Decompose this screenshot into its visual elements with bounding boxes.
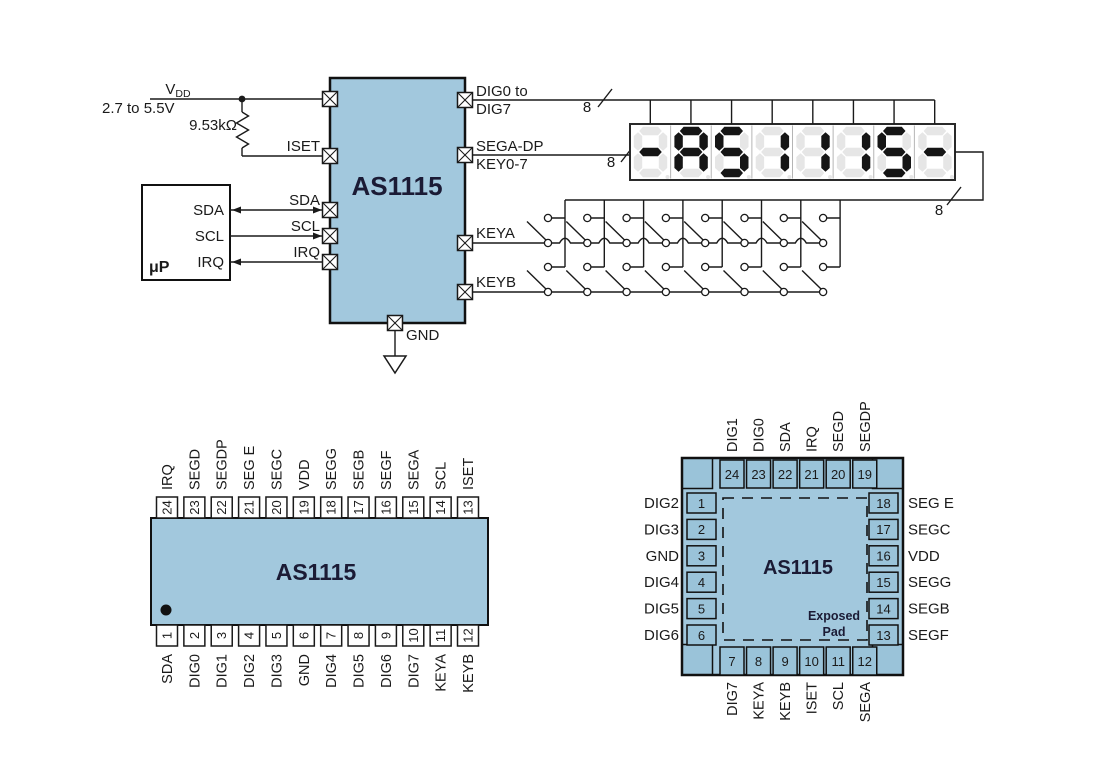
display-segment-d: [761, 169, 784, 177]
dig-bus-slash-icon: [598, 89, 612, 107]
qfn-pin-label: DIG3: [644, 521, 679, 538]
keyb-switch-lever: [802, 271, 823, 292]
qfn-pad-number: 24: [725, 467, 739, 482]
qfn-pad-number: 12: [858, 654, 872, 669]
display-segment-f: [796, 132, 804, 151]
keyb-switch-lever: [566, 271, 587, 292]
switch-contact-node: [544, 239, 551, 246]
qfn-pin-label: DIG5: [644, 601, 679, 618]
sda-arrow-left-icon: [232, 207, 241, 214]
qfn-pin-label: SEGA: [858, 682, 874, 723]
display-segment-g: [639, 148, 662, 156]
soic-pin-number: 16: [378, 500, 393, 514]
qfn-pad-number: 21: [804, 467, 818, 482]
switch-contact-node: [820, 214, 827, 221]
soic-pin-number: 15: [406, 500, 421, 514]
qfn-pad-number: 10: [804, 654, 818, 669]
soic-pin-number: 5: [269, 632, 284, 639]
soic-package-pinout: AS1115 24IRQ23SEGD22SEGDP21SEG E20SEGC19…: [151, 439, 488, 692]
display-segment-e: [796, 153, 804, 172]
display-segment-c: [943, 153, 951, 172]
soic-pin-number: 11: [433, 629, 448, 643]
soic-pin-number: 20: [269, 500, 284, 514]
display-segment-g: [842, 148, 865, 156]
datasheet-figure: VDD 2.7 to 5.5V 9.53kΩ ISET SDA SCL IRQ …: [0, 0, 1100, 778]
soic-pin-label: DIG1: [215, 654, 231, 688]
switch-contact-node: [623, 288, 630, 295]
switch-contact-node: [741, 239, 748, 246]
qfn-pad-number: 4: [698, 575, 705, 590]
qfn-pad-number: 5: [698, 601, 705, 616]
mcu-irq-label: IRQ: [197, 254, 224, 271]
soic-pin-number: 9: [378, 632, 393, 639]
keya-switch-lever: [802, 222, 823, 243]
qfn-pin-label: SEGB: [908, 601, 950, 618]
seg-bus-width: 8: [607, 154, 615, 171]
soic-pin-number: 3: [214, 632, 229, 639]
display-segment-f: [837, 132, 845, 151]
display-segment-d: [639, 169, 662, 177]
switch-contact-node: [820, 288, 827, 295]
soic-pin-number: 24: [160, 500, 175, 514]
qfn-pin-label: SEGDP: [858, 401, 874, 452]
soic-pin-label: DIG4: [324, 654, 340, 688]
soic-pin-label: SEGB: [352, 450, 368, 490]
qfn-pin-label: VDD: [908, 548, 940, 565]
qfn-pin-label: DIG6: [644, 627, 679, 644]
display-dp-dot: [909, 175, 913, 179]
display-segment-f: [674, 132, 682, 151]
mcu-label: μP: [149, 259, 170, 276]
soic-pin-number: 19: [296, 500, 311, 514]
display-segment-f: [634, 132, 642, 151]
qfn-pad-number: 11: [831, 654, 845, 669]
qfn-pad-number: 7: [728, 654, 735, 669]
soic-pin-number: 21: [242, 500, 257, 514]
display-segment-e: [674, 153, 682, 172]
switch-contact-node: [741, 288, 748, 295]
soic-pin-label: SEGDP: [215, 439, 231, 490]
display-segment-e: [837, 153, 845, 172]
supply-range-label: 2.7 to 5.5V: [102, 100, 175, 117]
keya-row-wire: [473, 238, 823, 243]
soic-pin-number: 18: [324, 500, 339, 514]
seg-bus-label-2: KEY0-7: [476, 156, 528, 173]
keyb-switch-lever: [606, 271, 627, 292]
display-dp-dot: [869, 175, 873, 179]
display-segment-a: [639, 127, 662, 135]
display-segment-b: [659, 132, 667, 151]
switch-contact-node: [623, 239, 630, 246]
switch-contact-node: [584, 239, 591, 246]
soic-pin-number: 6: [296, 632, 311, 639]
display-segment-a: [802, 127, 825, 135]
as1115-block-label: AS1115: [351, 171, 442, 201]
qfn-pin-label: SEGD: [831, 411, 847, 452]
keyb-switch-lever: [724, 271, 745, 292]
display-dp-dot: [950, 175, 954, 179]
qfn-pin-label: DIG2: [644, 495, 679, 512]
display-segment-a: [883, 127, 906, 135]
display-segment-c: [740, 153, 749, 172]
irq-arrow-icon: [232, 259, 241, 266]
qfn-pad-number: 2: [698, 522, 705, 537]
display-segment-g: [680, 148, 703, 156]
keya-pin-label: KEYA: [476, 225, 515, 242]
soic-pin-number: 17: [351, 500, 366, 514]
soic-pin-number: 7: [324, 632, 339, 639]
display-segment-f: [756, 132, 764, 151]
display-segment-a: [680, 127, 703, 135]
display-segment-e: [756, 153, 764, 172]
display-dp-dot: [828, 175, 832, 179]
switch-contact-node: [780, 239, 787, 246]
scl-pin-label: SCL: [291, 218, 320, 235]
soic-pin-label: SEGF: [379, 450, 395, 490]
switch-contact-node: [662, 288, 669, 295]
display-segment-g: [802, 148, 825, 156]
soic-pin-label: SDA: [160, 654, 176, 684]
qfn-pin-label: DIG0: [752, 418, 768, 452]
display-segment-c: [862, 153, 870, 172]
qfn-pad-number: 20: [831, 467, 845, 482]
display-segment-b: [781, 132, 789, 151]
qfn-pad-number: 19: [858, 467, 872, 482]
qfn-pad-number: 9: [781, 654, 788, 669]
switch-contact-node: [623, 214, 630, 221]
display-segment-g: [761, 148, 784, 156]
qfn-pad-number: 1: [698, 496, 705, 511]
soic-pin-label: SEG E: [242, 445, 258, 490]
switch-contact-node: [662, 214, 669, 221]
qfn-pin-label: SEGF: [908, 627, 949, 644]
as1115-diagram-svg: VDD 2.7 to 5.5V 9.53kΩ ISET SDA SCL IRQ …: [0, 0, 1100, 778]
qfn-pin-label: DIG4: [644, 574, 679, 591]
qfn-pin-label: SEGC: [908, 521, 951, 538]
soic-pin-label: ISET: [461, 458, 477, 490]
switch-contact-node: [780, 214, 787, 221]
display-segment-d: [842, 169, 865, 177]
qfn-pin-label: DIG1: [725, 418, 741, 452]
soic-pin-number: 23: [187, 500, 202, 514]
display-segment-b: [699, 132, 707, 151]
qfn-pin-label: ISET: [805, 682, 821, 714]
irq-pin-label: IRQ: [293, 244, 320, 261]
display-segment-c: [821, 153, 829, 172]
switch-contact-node: [741, 263, 748, 270]
switch-contact-node: [780, 263, 787, 270]
display-segment-a: [761, 127, 784, 135]
soic-pin-label: GND: [297, 654, 313, 686]
soic-pin-number: 2: [187, 632, 202, 639]
keyb-switch-lever: [645, 271, 666, 292]
qfn-pad-number: 8: [755, 654, 762, 669]
keya-switch-lever: [724, 222, 745, 243]
display-segment-e: [878, 153, 887, 172]
switch-contact-node: [623, 263, 630, 270]
switch-contact-node: [820, 239, 827, 246]
soic-pin-number: 8: [351, 632, 366, 639]
display-segment-f: [715, 132, 724, 151]
soic-pin-number: 12: [461, 628, 476, 642]
qfn-pin-label: SDA: [778, 422, 794, 452]
display-segment-d: [883, 169, 906, 177]
display-segment-d: [924, 169, 947, 177]
soic-pin-label: DIG7: [406, 654, 422, 688]
keyb-switch-lever: [763, 271, 784, 292]
soic-pin-number: 22: [214, 500, 229, 514]
keya-switch-lever: [645, 222, 666, 243]
switch-contact-node: [702, 263, 709, 270]
key-matrix: [473, 200, 840, 296]
qfn-pin-label: SEGG: [908, 574, 951, 591]
qfn-package-pinout: AS1115 Exposed Pad 24DIG123DIG022SDA21IR…: [644, 401, 954, 722]
display-dp-dot: [787, 175, 791, 179]
keya-switch-lever: [684, 222, 705, 243]
soic-pin-number: 13: [461, 500, 476, 514]
display-segment-c: [659, 153, 667, 172]
display-segment-e: [715, 153, 724, 172]
display-segment-g: [924, 148, 947, 156]
application-schematic: VDD 2.7 to 5.5V 9.53kΩ ISET SDA SCL IRQ …: [102, 78, 983, 373]
switch-contact-node: [584, 214, 591, 221]
switch-contact-node: [820, 263, 827, 270]
soic-pin-label: SEGC: [269, 449, 285, 490]
keya-switch-lever: [566, 222, 587, 243]
switch-contact-node: [780, 288, 787, 295]
display-digit-drive-lines: [650, 100, 934, 124]
soic-chip-label: AS1115: [276, 559, 357, 585]
display-segment-b: [903, 132, 912, 151]
qfn-pin-label: DIG7: [725, 682, 741, 716]
soic-pin-label: IRQ: [160, 464, 176, 490]
qfn-pin-label: SEG E: [908, 495, 954, 512]
display-segment-f: [918, 132, 926, 151]
key-bus-slash-icon: [947, 187, 961, 205]
soic-pin-label: KEYA: [434, 654, 450, 692]
display-segment-e: [918, 153, 926, 172]
key-bus-width: 8: [935, 202, 943, 219]
switch-contact-node: [584, 263, 591, 270]
iset-pin-label: ISET: [287, 138, 320, 155]
soic-pin-label: SEGG: [324, 448, 340, 490]
display-segment-b: [862, 132, 870, 151]
soic-pin-label: DIG6: [379, 654, 395, 688]
qfn-pin-label: IRQ: [805, 426, 821, 452]
display-segment-d: [721, 169, 744, 177]
qfn-pad-number: 6: [698, 628, 705, 643]
display-dp-dot: [666, 175, 670, 179]
soic-pin-label: SEGD: [187, 449, 203, 490]
keyb-switch-lever: [527, 271, 548, 292]
keya-switch-lever: [527, 222, 548, 243]
qfn-pad-number: 18: [876, 496, 890, 511]
display-segment-a: [924, 127, 947, 135]
display-segment-e: [634, 153, 642, 172]
qfn-pin-label: GND: [646, 548, 680, 565]
exposed-pad-label-1: Exposed: [808, 609, 860, 623]
dig-bus-width: 8: [583, 99, 591, 116]
keya-switch-lever: [606, 222, 627, 243]
display-segment-c: [903, 153, 912, 172]
dig-bus-label-1: DIG0 to: [476, 83, 528, 100]
switch-contact-node: [702, 214, 709, 221]
soic-pin-label: SEGA: [406, 449, 422, 490]
qfn-pin-label: KEYA: [752, 682, 768, 720]
qfn-pad-number: 16: [876, 549, 890, 564]
gnd-pin-label: GND: [406, 327, 440, 344]
display-segment-g: [883, 148, 906, 156]
soic-pin-number: 1: [160, 632, 175, 639]
display-segment-a: [842, 127, 865, 135]
qfn-pad-number: 14: [876, 601, 890, 616]
qfn-pin-label: KEYB: [778, 682, 794, 721]
switch-contact-node: [741, 214, 748, 221]
qfn-chip-label: AS1115: [763, 557, 833, 579]
display-segment-c: [781, 153, 789, 172]
display-segment-b: [821, 132, 829, 151]
switch-contact-node: [662, 239, 669, 246]
dig-bus-label-2: DIG7: [476, 101, 511, 118]
display-dp-dot: [706, 175, 710, 179]
qfn-pad-number: 13: [876, 628, 890, 643]
ground-symbol-icon: [384, 356, 406, 373]
switch-contact-node: [662, 263, 669, 270]
mcu-scl-label: SCL: [195, 228, 224, 245]
qfn-corner: [683, 645, 713, 675]
mcu-sda-label: SDA: [193, 202, 224, 219]
soic-pin-label: DIG0: [187, 654, 203, 688]
switch-contact-node: [702, 288, 709, 295]
display-segment-d: [680, 169, 703, 177]
soic-pin-label: KEYB: [461, 654, 477, 693]
soic-pin-number: 14: [433, 500, 448, 514]
exposed-pad-label-2: Pad: [823, 625, 846, 639]
switch-contact-node: [544, 263, 551, 270]
display-segment-b: [740, 132, 749, 151]
keyb-switch-lever: [684, 271, 705, 292]
display-segment-f: [878, 132, 887, 151]
display-dp-dot: [747, 175, 751, 179]
qfn-pad-number: 17: [876, 522, 890, 537]
keyb-pin-label: KEYB: [476, 274, 516, 291]
switch-contact-node: [544, 288, 551, 295]
soic-pin-label: VDD: [297, 459, 313, 490]
pin1-dot-icon: [161, 605, 172, 616]
resistor-symbol: [237, 112, 249, 148]
keya-switch-lever: [763, 222, 784, 243]
soic-pin-label: DIG5: [352, 654, 368, 688]
qfn-pad-number: 22: [778, 467, 792, 482]
display-segment-c: [699, 153, 707, 172]
switch-contact-node: [584, 288, 591, 295]
display-segment-d: [802, 169, 825, 177]
qfn-pad-number: 15: [876, 575, 890, 590]
soic-pin-number: 4: [242, 632, 257, 639]
soic-pin-label: DIG3: [269, 654, 285, 688]
switch-contact-node: [544, 214, 551, 221]
qfn-pad-number: 23: [751, 467, 765, 482]
qfn-pin-label: SCL: [831, 682, 847, 710]
soic-pin-label: SCL: [434, 462, 450, 490]
soic-pin-label: DIG2: [242, 654, 258, 688]
display-segment-b: [943, 132, 951, 151]
display-segment-a: [721, 127, 744, 135]
qfn-corner: [683, 459, 713, 489]
switch-contact-node: [702, 239, 709, 246]
display-segment-g: [721, 148, 744, 156]
sda-pin-label: SDA: [289, 192, 320, 209]
seg-bus-label-1: SEGA-DP: [476, 138, 544, 155]
soic-pin-number: 10: [406, 628, 421, 642]
qfn-pad-number: 3: [698, 549, 705, 564]
vdd-label: VDD: [165, 81, 191, 100]
resistor-value-label: 9.53kΩ: [189, 117, 237, 134]
